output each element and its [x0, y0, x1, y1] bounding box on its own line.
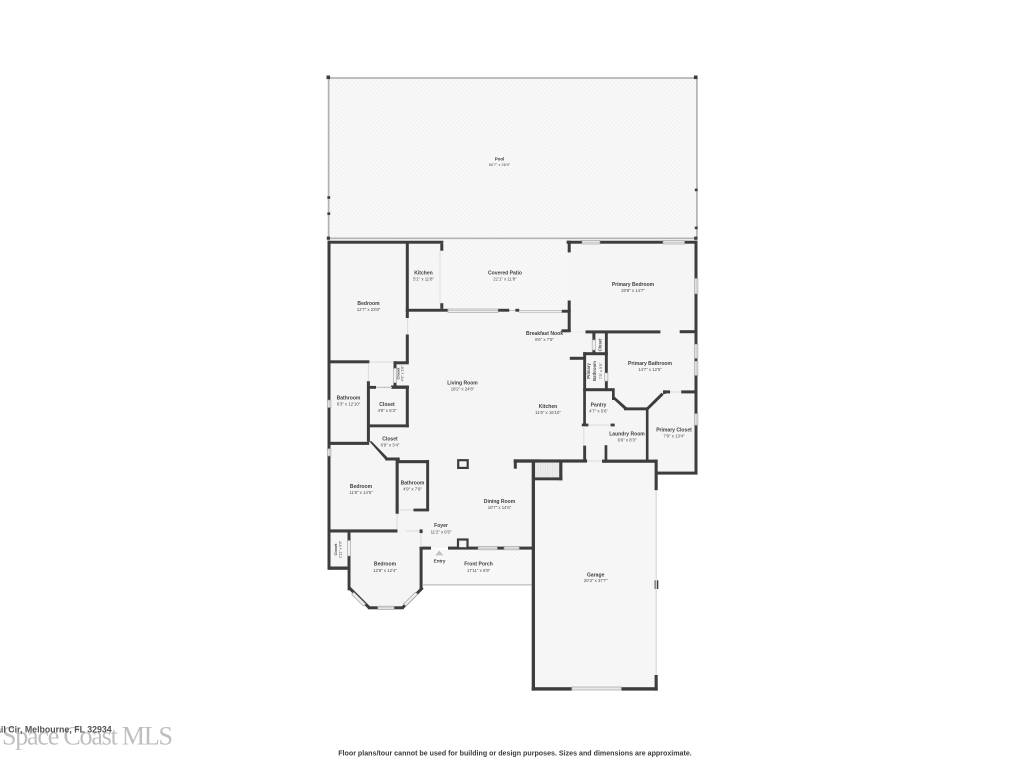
svg-text:4'9" x 1'8": 4'9" x 1'8" — [401, 365, 405, 381]
svg-text:Bedroom: Bedroom — [374, 562, 397, 568]
svg-text:4'9" x 6'3": 4'9" x 6'3" — [378, 408, 397, 413]
svg-text:12'7" x 23'8": 12'7" x 23'8" — [357, 307, 381, 312]
svg-text:Laundry Room: Laundry Room — [609, 431, 645, 437]
svg-text:4'7" x 5'6": 4'7" x 5'6" — [589, 409, 608, 414]
svg-text:8'6" x 7'5": 8'6" x 7'5" — [535, 337, 554, 342]
svg-text:Bathroom: Bathroom — [337, 395, 361, 401]
svg-text:18'2" x 24'8": 18'2" x 24'8" — [451, 387, 475, 392]
svg-text:11'6" x 16'10": 11'6" x 16'10" — [535, 410, 561, 415]
svg-text:12'8" x 12'4": 12'8" x 12'4" — [373, 568, 397, 573]
svg-text:Bedroom: Bedroom — [350, 484, 373, 490]
svg-text:ail Cir, Melbourne, FL 32934: ail Cir, Melbourne, FL 32934 — [0, 724, 112, 734]
svg-text:Dining Room: Dining Room — [484, 499, 516, 505]
svg-text:60'7" x 26'9": 60'7" x 26'9" — [489, 162, 511, 167]
svg-text:Closet: Closet — [333, 543, 338, 556]
svg-text:21'1" x 11'8": 21'1" x 11'8" — [493, 277, 517, 282]
svg-text:17'11" x 6'9": 17'11" x 6'9" — [467, 568, 491, 573]
svg-text:10'7" x 14'6": 10'7" x 14'6" — [488, 505, 512, 510]
svg-text:7'3" x 5'5": 7'3" x 5'5" — [599, 362, 603, 379]
svg-text:20'3" x 37'7": 20'3" x 37'7" — [584, 578, 608, 583]
svg-text:Bathroom: Bathroom — [401, 480, 425, 486]
svg-text:Kitchen: Kitchen — [414, 270, 433, 276]
svg-text:11'8" x 14'5": 11'8" x 14'5" — [349, 490, 373, 495]
svg-text:Bathroom: Bathroom — [592, 361, 597, 381]
svg-text:Front Porch: Front Porch — [464, 562, 493, 568]
svg-text:Floor plans/tour cannot be use: Floor plans/tour cannot be used for buil… — [338, 750, 692, 758]
svg-text:2'11" x 9'9": 2'11" x 9'9" — [339, 540, 343, 558]
svg-text:6'6" x 8'3": 6'6" x 8'3" — [618, 438, 637, 443]
svg-text:7'9" x 13'4": 7'9" x 13'4" — [663, 434, 685, 439]
svg-text:Primary Closet: Primary Closet — [656, 427, 692, 433]
svg-text:6'3" x 12'10": 6'3" x 12'10" — [337, 402, 361, 407]
svg-text:Primary Bedroom: Primary Bedroom — [612, 282, 655, 288]
svg-text:Covered Patio: Covered Patio — [488, 270, 522, 276]
svg-text:6'9" x 3'4": 6'9" x 3'4" — [381, 443, 400, 448]
svg-text:Closet: Closet — [598, 338, 603, 351]
svg-text:Closet: Closet — [379, 402, 395, 408]
svg-text:Pantry: Pantry — [591, 402, 607, 408]
svg-text:5'1" x 11'8": 5'1" x 11'8" — [413, 277, 434, 282]
svg-text:Primary: Primary — [586, 363, 591, 379]
svg-text:Pool: Pool — [495, 156, 505, 161]
svg-text:Entry: Entry — [434, 559, 446, 564]
svg-text:Kitchen: Kitchen — [539, 404, 558, 410]
svg-text:Foyer: Foyer — [434, 523, 448, 529]
svg-text:Breakfast Nook: Breakfast Nook — [526, 331, 563, 337]
svg-text:11'2" x 6'5": 11'2" x 6'5" — [431, 529, 452, 534]
svg-text:Primary Bathroom: Primary Bathroom — [628, 361, 673, 367]
svg-text:Living Room: Living Room — [447, 380, 478, 386]
svg-text:14'7" x 12'5": 14'7" x 12'5" — [638, 367, 662, 372]
svg-text:Bedroom: Bedroom — [357, 301, 380, 307]
svg-text:20'8" x 14'7": 20'8" x 14'7" — [621, 288, 645, 293]
svg-text:4'9" x 7'9": 4'9" x 7'9" — [403, 487, 422, 492]
